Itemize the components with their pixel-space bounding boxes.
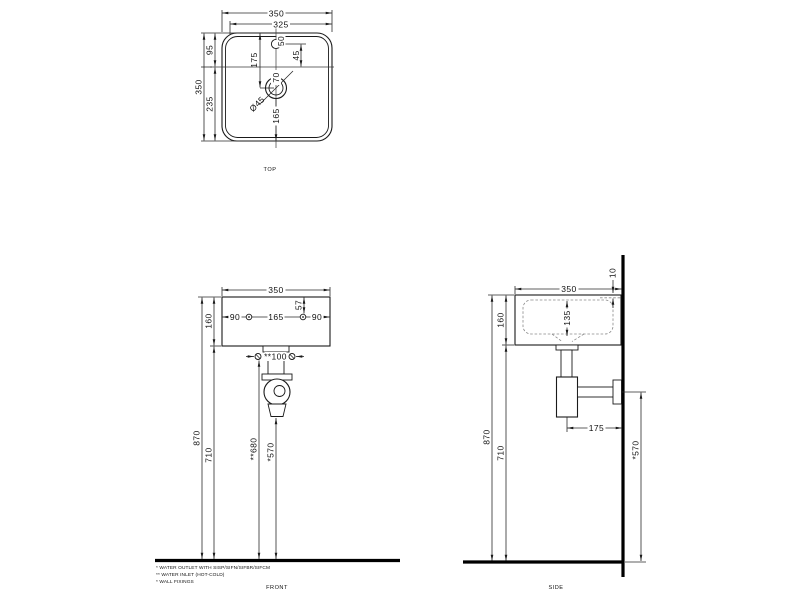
- dim-front-floor-to-inlet: **680: [249, 438, 259, 461]
- dim-side-trap-to-wall: 175: [589, 423, 604, 433]
- dim-front-floor-to-outlet: *570: [266, 442, 276, 461]
- dim-front-edge-to-fixing-left: 90: [230, 312, 240, 322]
- wall-flange: [613, 380, 622, 404]
- dim-front-floor-to-rim: 870: [192, 430, 202, 445]
- dim-front-inlet-spacing: **100: [264, 352, 287, 362]
- dim-front-width: 350: [268, 285, 283, 295]
- dim-top-rim-to-centerline: 95: [205, 45, 215, 55]
- dim-side-basin-height: 160: [496, 312, 506, 327]
- dim-top-back-to-drain: 175: [249, 52, 259, 67]
- outlet-pipe: [578, 387, 614, 397]
- dim-top-centerline-to-front: 235: [205, 96, 215, 111]
- dim-top-width-overall: 350: [269, 9, 284, 19]
- dim-front-rim-to-fixing: 57: [294, 300, 304, 310]
- dim-top-depth-overall: 350: [194, 79, 204, 94]
- technical-drawing: 350 325 95 235 350 175 50 45 70 Ø45 165 …: [0, 0, 800, 600]
- drawing-sheet: 350 325 95 235 350 175 50 45 70 Ø45 165 …: [0, 0, 800, 600]
- bottle-trap-front: [262, 374, 292, 417]
- dim-front-fixing-spacing: 165: [268, 312, 283, 322]
- dim-side-bowl-depth: 135: [562, 310, 572, 325]
- bottle-trap-side: [556, 345, 622, 417]
- dim-top-width-inner: 325: [273, 20, 288, 30]
- dim-side-floor-to-outlet: *570: [631, 440, 641, 459]
- top-view: 350 325 95 235 350 175 50 45 70 Ø45 165 …: [194, 9, 335, 174]
- dim-top-centerline-to-drain: 70: [271, 72, 281, 82]
- dim-top-drain-diameter: Ø45: [247, 94, 266, 113]
- dim-top-faucet-hole: 50: [276, 36, 286, 46]
- side-view: 350 10 160 135 870 710 175: [463, 255, 646, 591]
- dim-front-floor-to-basin-bottom: 710: [204, 447, 214, 462]
- view-label-side: SIDE: [548, 585, 563, 591]
- dim-side-floor-to-basin-bottom: 710: [496, 445, 506, 460]
- view-label-front: FRONT: [266, 585, 288, 591]
- dim-side-rim-lip: 10: [608, 268, 618, 278]
- note-water-outlet: * WATER OUTLET WITH SISP/SIFN/SIFBR/SIFC…: [156, 565, 270, 571]
- note-water-inlet: ** WATER INLET (HOT-COLD): [156, 572, 225, 578]
- note-wall-fixings: * WALL FIXINGS: [156, 579, 194, 585]
- view-label-top: TOP: [264, 167, 277, 173]
- front-view: 350 90 165 90 57 **100: [155, 285, 400, 591]
- dim-front-edge-to-fixing-right: 90: [312, 312, 322, 322]
- dim-top-faucet-to-centerline: 45: [291, 50, 301, 60]
- dim-side-floor-to-rim: 870: [482, 429, 492, 444]
- dim-side-depth: 350: [561, 284, 576, 294]
- footnotes: * WATER OUTLET WITH SISP/SIFN/SIFBR/SIFC…: [156, 565, 270, 585]
- dim-top-drain-to-front: 165: [271, 108, 281, 123]
- dim-front-basin-height: 160: [204, 313, 214, 328]
